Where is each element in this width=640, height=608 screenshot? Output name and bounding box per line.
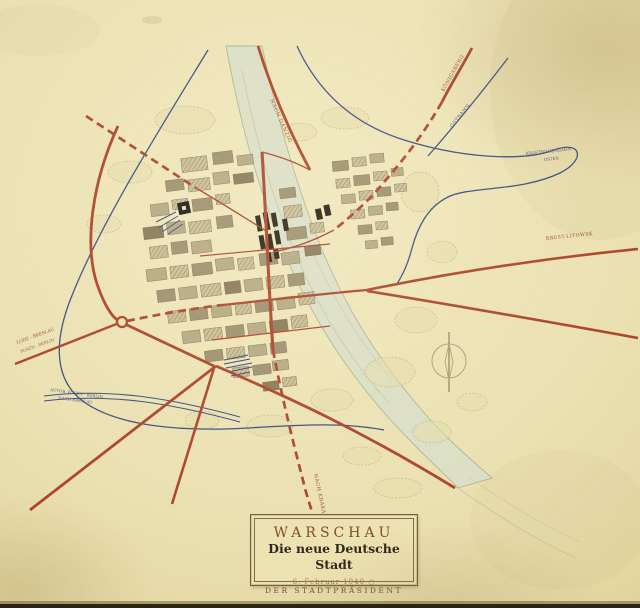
map-title: WARSCHAU: [255, 526, 413, 541]
road-label-koenigsberg: KÖNIGSBERG: [440, 53, 466, 93]
road-lodz-breslau: [15, 323, 119, 364]
date-seal-mark: ○: [368, 578, 375, 586]
map-signature: DER STADTPRÄSIDENT: [255, 586, 413, 596]
ring-junction: [117, 317, 127, 327]
road-koenigsberg: [442, 48, 472, 102]
road-label-krakau: NACH KRAKAU: [312, 473, 327, 519]
title-cartouche: WARSCHAU Die neue Deutsche Stadt 6. Febr…: [250, 514, 418, 586]
map-date: 6. Februar 1940 ○: [255, 579, 413, 587]
city-blocks-east: [332, 151, 412, 251]
road-south: [172, 368, 214, 504]
road-east-upper: [367, 249, 638, 290]
map-photograph: NACH DANZIG KÖNIGSBERG OSTBAHN KRAFTWAGE…: [0, 0, 640, 608]
cartouche-inner-border: WARSCHAU Die neue Deutsche Stadt 6. Febr…: [254, 518, 414, 582]
compass-icon: [432, 332, 466, 392]
photo-edge: [0, 604, 640, 608]
station-blocks: [314, 204, 331, 220]
rail-label-ostbahn: OSTBAHN: [449, 103, 472, 130]
map-subtitle: Die neue Deutsche Stadt: [255, 541, 413, 572]
